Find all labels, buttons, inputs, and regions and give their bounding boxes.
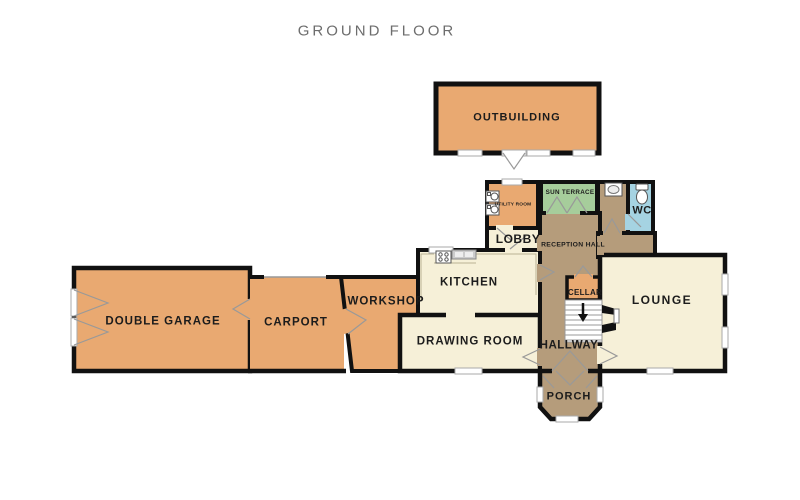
- stove-icon: [436, 251, 451, 263]
- window: [502, 179, 522, 185]
- room-label-sun-terrace: SUN TERRACE: [546, 190, 595, 196]
- room-label-utility-room: UTILITY ROOM: [495, 204, 532, 209]
- floorplan-drawing: [0, 0, 800, 500]
- window: [556, 416, 578, 422]
- room-label-carport: CARPORT: [264, 317, 328, 329]
- room-label-lobby: LOBBY: [496, 233, 541, 245]
- window: [527, 150, 550, 156]
- window: [455, 368, 482, 374]
- garage-door-opening: [71, 289, 77, 316]
- room-label-drawing-room: DRAWING ROOM: [417, 336, 524, 348]
- room-label-double-garage: DOUBLE GARAGE: [105, 316, 220, 328]
- room-label-wc: WC: [632, 206, 651, 217]
- room-label-cellar: CELLAR: [568, 289, 602, 297]
- garage-door-opening: [71, 318, 77, 346]
- toilet-icon: [636, 184, 648, 204]
- floorplan-page: GROUND FLOOR OUTBUILDING DOUBLE GARAGE C…: [0, 0, 800, 500]
- room-label-kitchen: KITCHEN: [440, 277, 498, 289]
- room-label-outbuilding: OUTBUILDING: [473, 113, 560, 124]
- window: [573, 150, 595, 156]
- staircase-icon: [565, 300, 602, 342]
- window: [537, 387, 543, 402]
- room-label-workshop: WORKSHOP: [348, 296, 425, 308]
- room-label-porch: PORCH: [547, 392, 592, 403]
- hand-basin-icon: [605, 183, 622, 196]
- room-label-hallway: HALLWAY: [540, 340, 599, 352]
- outbuilding-door-swing: [503, 153, 525, 169]
- window: [597, 387, 603, 402]
- window: [458, 150, 482, 156]
- window: [647, 368, 673, 374]
- room-label-reception-hall: RECEPTION HALL: [541, 243, 605, 250]
- window: [722, 327, 728, 348]
- window: [722, 274, 728, 295]
- rooms-layer: [74, 84, 725, 419]
- washing-machine-icon: [486, 191, 499, 202]
- room-label-lounge: LOUNGE: [632, 294, 692, 306]
- page-title: GROUND FLOOR: [298, 23, 457, 40]
- kitchen-sink-icon: [452, 250, 476, 259]
